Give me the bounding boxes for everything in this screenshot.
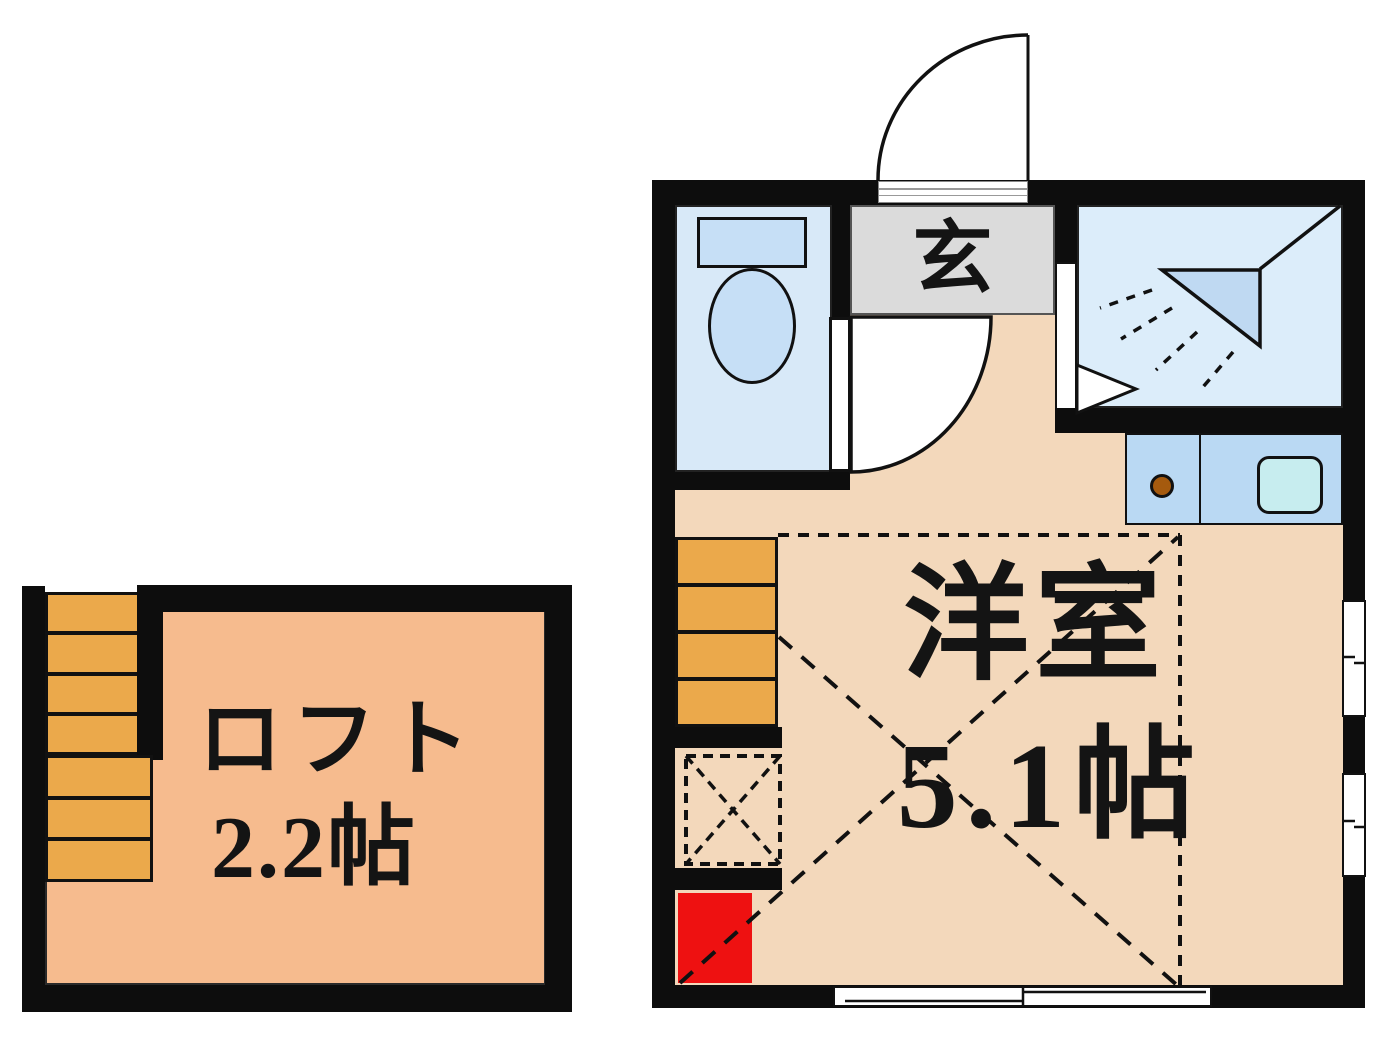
stairs-icon-loft-lower: [45, 755, 153, 882]
stair-tread: [678, 634, 775, 681]
stair-tread: [678, 540, 775, 587]
western-room-size: 5.1帖: [855, 712, 1245, 862]
red-marker: [678, 893, 752, 983]
genkan-right-wall-top: [1055, 205, 1077, 262]
stair-tread: [48, 800, 150, 842]
stairs-lower-wall: [675, 727, 782, 748]
sliding-window-icon-right-1: [1342, 600, 1366, 717]
toilet-icon: [697, 217, 807, 268]
stair-tread: [48, 716, 137, 752]
toilet-bottom-wall: [675, 472, 850, 490]
loft-top-wall: [137, 585, 572, 612]
shower-door: [1055, 262, 1077, 410]
loft-bottom-wall: [22, 985, 572, 1012]
loft-left-wall: [22, 586, 45, 1012]
kitchen-divider: [1199, 433, 1201, 525]
shower-room: [1077, 205, 1343, 408]
stair-tread: [48, 841, 150, 879]
hatch-lower-wall: [675, 868, 782, 890]
sliding-window-icon-right-2: [1342, 773, 1366, 877]
interior-door-leaf: [829, 317, 851, 472]
loft-size: 2.2帖: [168, 793, 460, 905]
floorplan-canvas: 玄 洋室 5.1帖 ロフト 2.2帖: [0, 0, 1400, 1050]
burner-icon: [1150, 474, 1174, 498]
stair-tread: [48, 635, 137, 675]
loft-label: ロフト: [183, 688, 495, 794]
stair-tread: [48, 758, 150, 800]
sink-icon: [1257, 456, 1323, 514]
door-swing-icon-entrance: [878, 35, 1028, 180]
western-room-label: 洋室: [880, 558, 1190, 696]
shower-bottom-wall: [1055, 408, 1343, 433]
stair-tread: [48, 595, 137, 635]
loft-stair-stub-wall: [137, 585, 163, 760]
stair-tread: [678, 681, 775, 724]
stairs-icon-main: [675, 537, 778, 727]
entrance-threshold: [878, 181, 1028, 203]
toilet-bowl-icon: [708, 268, 796, 384]
loft-right-wall: [545, 585, 572, 1012]
stairs-icon-loft-upper: [45, 592, 137, 755]
stair-tread: [48, 676, 137, 716]
stair-tread: [678, 587, 775, 634]
genkan-label: 玄: [850, 207, 1055, 313]
toilet-right-wall: [832, 205, 850, 317]
sliding-window-icon-bottom: [833, 986, 1212, 1007]
